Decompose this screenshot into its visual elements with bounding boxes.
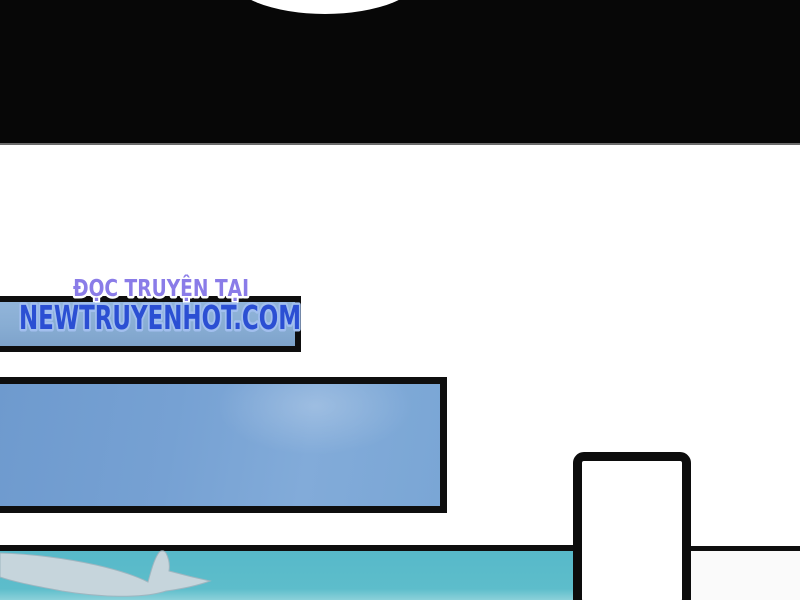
speech-bubble-cutout — [229, 0, 421, 14]
top-black-band — [0, 0, 800, 145]
panel-white-vertical — [573, 452, 691, 600]
wave-path — [0, 551, 210, 596]
comic-page: ĐỌC TRUYỆN TẠI NEWTRUYENHOT.COM — [0, 0, 800, 600]
panel-teal — [0, 545, 582, 600]
panel-bottom-right — [684, 546, 800, 600]
site-watermark: ĐỌC TRUYỆN TẠI NEWTRUYENHOT.COM — [0, 268, 340, 336]
wave-highlight-shape — [0, 551, 230, 600]
watermark-line2-text: NEWTRUYENHOT.COM — [19, 298, 301, 337]
panel-sky — [0, 377, 447, 513]
